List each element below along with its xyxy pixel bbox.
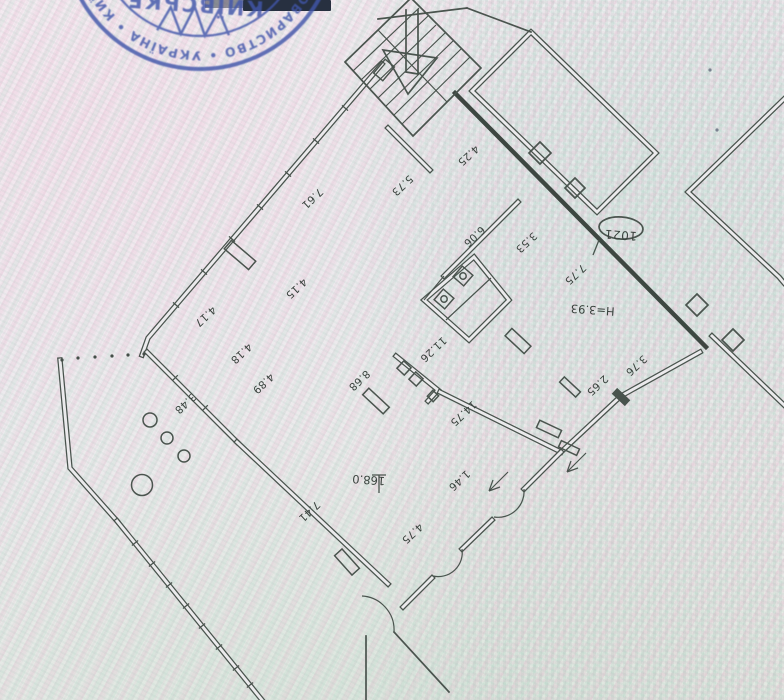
fixtures-group bbox=[224, 59, 630, 575]
annotation-label: Н=3.93 bbox=[570, 301, 615, 318]
dimension-label: 4.75 bbox=[399, 520, 425, 546]
dimension-label: 4.25 bbox=[455, 142, 481, 168]
dimension-labels-group: 4.255.737.614.154.174.184.893.486.063.53… bbox=[172, 142, 649, 546]
dimension-label: 2.65 bbox=[584, 372, 610, 398]
floor-plan-photo: КИЇВСЬКЕ ТОВАРИСТВО • УКРАЇНА • КИЇВ • bbox=[0, 0, 784, 700]
dimension-label: 3.76 bbox=[623, 352, 649, 378]
floor-plan-drawing: КИЇВСЬКЕ ТОВАРИСТВО • УКРАЇНА • КИЇВ • bbox=[0, 0, 784, 700]
dimension-label: 4.89 bbox=[250, 370, 276, 396]
column-circle bbox=[132, 475, 153, 496]
column-circle bbox=[161, 432, 173, 444]
dimension-label: 5.73 bbox=[389, 172, 415, 198]
round-stamp: КИЇВСЬКЕ ТОВАРИСТВО • УКРАЇНА • КИЇВ • bbox=[55, 0, 345, 78]
dimension-label: 4.15 bbox=[283, 275, 309, 301]
column-circle bbox=[178, 450, 190, 462]
dimension-label: 11.26 bbox=[417, 334, 448, 364]
dotted-line bbox=[60, 352, 145, 361]
staircase bbox=[345, 0, 531, 136]
doors-group bbox=[362, 276, 586, 700]
dimension-label: 6.06 bbox=[461, 223, 487, 249]
room-number-label: 1021 bbox=[604, 227, 637, 243]
dimension-label: 4.18 bbox=[228, 340, 254, 366]
dimension-label: 1.46 bbox=[446, 467, 472, 493]
photo-specks bbox=[708, 68, 718, 131]
annotation-label: 168.0 bbox=[352, 472, 386, 488]
column-circle bbox=[143, 413, 157, 427]
dimension-label: 3.48 bbox=[172, 390, 198, 416]
dimension-label: 3.53 bbox=[513, 229, 539, 255]
walls-group bbox=[60, 32, 784, 700]
stamp-title: КИЇВСЬКЕ bbox=[126, 0, 265, 22]
round-columns bbox=[132, 413, 191, 496]
dimension-label: 4.17 bbox=[192, 303, 218, 329]
dimension-label: 7.61 bbox=[299, 185, 325, 211]
dimension-label: 7.75 bbox=[562, 261, 588, 287]
